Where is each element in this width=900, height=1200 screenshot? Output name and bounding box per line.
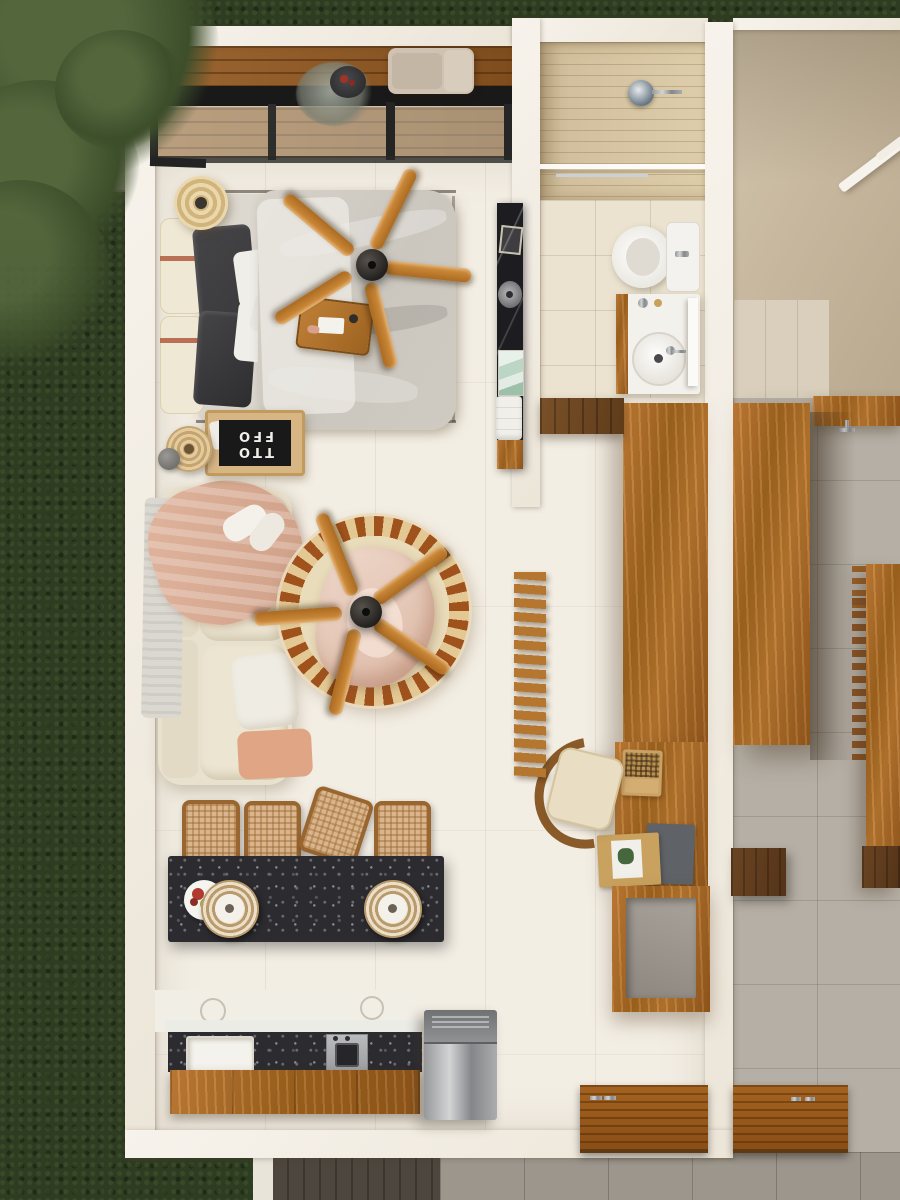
tray-napkin — [307, 325, 320, 334]
soap-dispenser — [638, 298, 648, 308]
hob-knob — [333, 1036, 338, 1041]
stair-slats — [514, 572, 546, 780]
tree-canopy — [55, 30, 185, 150]
console-basin-drain — [506, 291, 513, 298]
hob-knob — [345, 1036, 350, 1041]
hob-burner — [335, 1043, 359, 1067]
shower-glass-partition — [540, 164, 705, 169]
cube-shelf — [612, 886, 710, 1012]
tray-card — [318, 317, 345, 334]
folded-towels — [496, 396, 522, 440]
gas-hob — [326, 1034, 368, 1074]
console-artwork — [498, 350, 524, 396]
toilet-flush-button — [675, 251, 689, 257]
armchair-back-cushion — [444, 50, 472, 92]
unit-b-wardrobe-loft — [733, 403, 810, 745]
refrigerator-seam — [424, 1042, 497, 1044]
toilet-bowl — [612, 226, 672, 288]
unit-b-loft-shadow — [810, 412, 856, 760]
dining-stool — [182, 800, 240, 864]
sofa-pillow-salmon — [237, 728, 313, 780]
refrigerator — [424, 1010, 497, 1120]
fan-hub-dot — [368, 261, 376, 269]
mat-handle — [590, 1096, 602, 1100]
balcony-armchair — [388, 48, 474, 94]
mirror-shelf — [688, 298, 698, 386]
refrigerator-vent — [432, 1016, 489, 1030]
poster-line: FFO — [236, 428, 274, 442]
wall-north-bathroom — [512, 18, 708, 42]
shower-arm — [652, 90, 682, 94]
timber-boardwalk — [273, 1155, 440, 1200]
vanity-spout — [672, 350, 686, 353]
plate-center-dot — [225, 904, 234, 913]
pendant-lamp — [174, 176, 228, 230]
vanity-wood-edge — [616, 294, 628, 394]
fan-hub-dot — [362, 608, 370, 616]
rattan-stool-center — [184, 444, 194, 454]
poster-line: TTO — [236, 444, 274, 458]
fruit-dark — [190, 898, 198, 906]
decor-sphere — [158, 448, 180, 470]
pendant-lamp-hub — [195, 197, 207, 209]
rain-shower-head-icon — [628, 80, 654, 106]
shower-glass-shadow — [540, 170, 705, 173]
typographic-print-text: TTO FFO — [219, 420, 291, 466]
sofa-pillow-white — [230, 650, 301, 731]
unit-b-tile-zone — [733, 300, 829, 398]
cube-shelf-interior — [626, 898, 696, 998]
headboard-strap — [160, 338, 202, 343]
towel-bar — [556, 174, 648, 177]
scene-canvas: TTO FFO — [0, 0, 900, 1200]
path-white-strip — [253, 1155, 273, 1200]
mat-handle — [791, 1097, 801, 1101]
mat-handle — [604, 1096, 616, 1100]
refrigerator-door — [424, 1042, 497, 1120]
plate-center-dot — [388, 904, 397, 913]
book-cover-plant — [617, 848, 634, 865]
vanity-drain — [654, 354, 663, 363]
woven-charger-plate — [201, 880, 259, 938]
dining-stool — [374, 801, 431, 864]
vanity — [616, 294, 700, 394]
woven-charger-plate — [364, 880, 422, 938]
wardrobe-loft — [623, 403, 708, 745]
kitchen-counter-ledge — [165, 1020, 423, 1032]
dining-stool — [244, 801, 301, 864]
kitchen-cabinets — [170, 1070, 420, 1114]
console-frame — [499, 225, 524, 255]
wall-circle-decor — [360, 996, 384, 1020]
unit-b-cabinet-2 — [862, 846, 900, 888]
wall-north-unit-b — [733, 18, 900, 30]
planter-red-flower — [349, 80, 355, 86]
door-mullion — [504, 104, 512, 160]
door-mullion — [268, 104, 276, 160]
unit-b-loft-panel — [866, 564, 900, 886]
typographic-print: TTO FFO — [219, 420, 291, 466]
console-basin — [498, 281, 522, 308]
toilet-bowl-inner — [626, 238, 660, 276]
console-base — [497, 440, 523, 469]
planter-red-flower — [340, 75, 348, 83]
grey-pavers — [440, 1152, 900, 1200]
kitchen-sink — [186, 1036, 254, 1074]
mat-handle — [805, 1097, 815, 1101]
balcony-planter-bowl — [330, 66, 366, 98]
soap-dish — [654, 299, 662, 307]
entry-mat-unit-a — [580, 1085, 708, 1153]
armchair-seat — [392, 53, 442, 89]
door-mullion — [386, 102, 395, 160]
hall-bench — [540, 398, 624, 434]
entry-mat-unit-b — [733, 1085, 848, 1153]
unit-b-room — [733, 22, 900, 398]
toilet-tank — [666, 222, 700, 292]
tray-cup — [349, 314, 359, 324]
unit-b-cabinet — [731, 848, 786, 896]
bedside-table: TTO FFO — [205, 410, 305, 476]
